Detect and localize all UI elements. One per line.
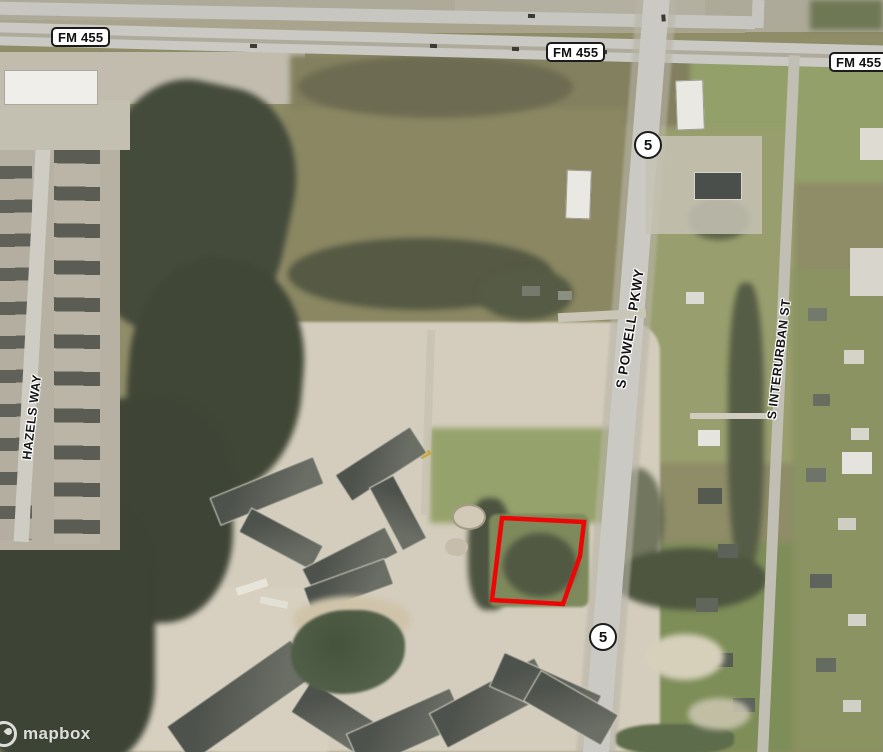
terrain-patch (838, 518, 856, 530)
terrain-patch (718, 544, 738, 558)
mapbox-logo-text: mapbox (23, 724, 91, 744)
road-shield-fm455-right: FM 455 (829, 52, 883, 72)
road-shield-fm455-left: FM 455 (51, 27, 110, 47)
terrain-patch (690, 413, 775, 419)
terrain-patch (793, 268, 883, 752)
terrain-patch (54, 150, 100, 544)
terrain-patch (298, 56, 573, 118)
route-badge-5-south: 5 (589, 623, 617, 651)
terrain-patch (860, 128, 883, 160)
terrain-patch (752, 0, 765, 28)
road-shield-fm455-center: FM 455 (546, 42, 605, 62)
terrain-patch (848, 614, 866, 626)
terrain-patch (250, 44, 257, 48)
terrain-patch (452, 504, 486, 530)
terrain-patch (728, 283, 764, 568)
terrain-patch (661, 14, 666, 21)
terrain-patch (806, 468, 826, 482)
terrain-patch (810, 574, 832, 588)
terrain-patch (698, 430, 720, 446)
mapbox-attribution[interactable]: mapbox (0, 721, 91, 747)
terrain-patch (696, 598, 718, 612)
terrain-patch (851, 428, 869, 440)
terrain-patch (0, 100, 130, 150)
terrain-patch (558, 291, 572, 300)
terrain-patch (694, 172, 742, 200)
terrain-patch (430, 44, 437, 48)
terrain-patch (686, 292, 704, 304)
terrain-patch (810, 0, 883, 30)
terrain-patch (843, 700, 861, 712)
terrain-patch (528, 14, 535, 18)
terrain-patch (842, 452, 872, 474)
route-badge-5-north: 5 (634, 131, 662, 159)
map-canvas[interactable]: FM 455 FM 455 FM 455 5 5 S POWELL PKWY S… (0, 0, 883, 752)
terrain-patch (612, 548, 767, 610)
terrain-patch (675, 80, 705, 131)
terrain-patch (646, 634, 724, 680)
terrain-patch (808, 308, 827, 321)
terrain-patch (445, 538, 468, 556)
terrain-patch (816, 658, 836, 672)
terrain-patch (844, 350, 864, 364)
terrain-patch (850, 248, 883, 296)
terrain-patch (565, 170, 592, 220)
mapbox-logo-icon (0, 721, 17, 747)
terrain-patch (813, 394, 830, 406)
terrain-patch (688, 698, 750, 730)
terrain-patch (4, 70, 98, 105)
terrain-patch (522, 286, 540, 296)
terrain-patch (698, 488, 722, 504)
terrain-patch (503, 533, 577, 597)
terrain-patch (512, 47, 519, 51)
